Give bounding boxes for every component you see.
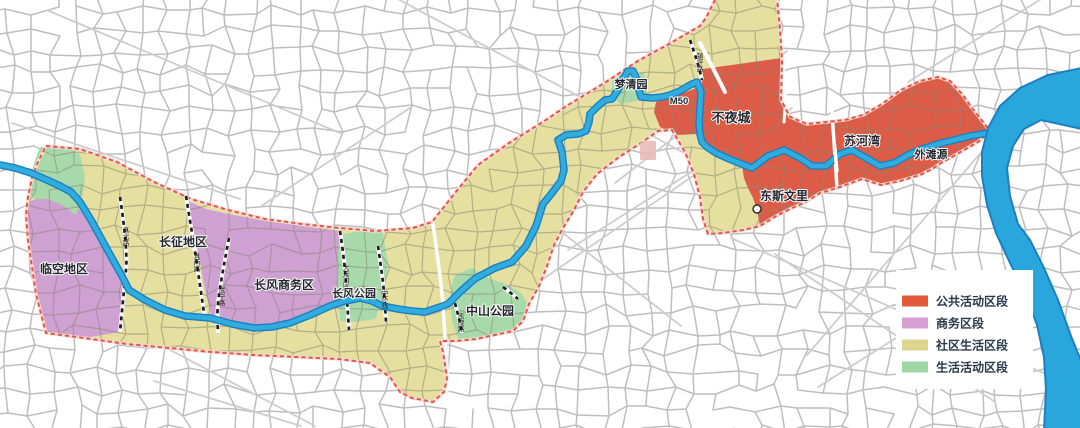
svg-text:梦清园: 梦清园 <box>615 77 648 91</box>
svg-text:长征地区: 长征地区 <box>159 234 207 249</box>
svg-text:生活活动区段: 生活活动区段 <box>936 360 1009 375</box>
svg-text:镇坪路: 镇坪路 <box>697 51 704 73</box>
svg-text:公共活动区段: 公共活动区段 <box>936 294 1009 309</box>
svg-text:武宁路: 武宁路 <box>219 285 226 307</box>
svg-text:临空地区: 临空地区 <box>40 261 88 276</box>
svg-text:中环线: 中环线 <box>382 288 389 310</box>
svg-text:外滩源: 外滩源 <box>914 147 948 161</box>
svg-text:长风公园: 长风公园 <box>332 286 376 300</box>
svg-text:商务区段: 商务区段 <box>936 316 985 331</box>
svg-text:长风商务区: 长风商务区 <box>254 277 314 292</box>
svg-text:凯旋路: 凯旋路 <box>458 312 465 333</box>
svg-text:真南路: 真南路 <box>194 251 201 273</box>
svg-text:不夜城: 不夜城 <box>711 110 750 125</box>
svg-text:真北路: 真北路 <box>123 225 130 247</box>
svg-text:M50: M50 <box>670 96 688 107</box>
svg-text:社区生活区段: 社区生活区段 <box>935 338 1009 353</box>
svg-text:苏河湾: 苏河湾 <box>844 133 880 148</box>
svg-text:东斯文里: 东斯文里 <box>760 188 808 203</box>
svg-text:中山公园: 中山公园 <box>466 303 514 318</box>
